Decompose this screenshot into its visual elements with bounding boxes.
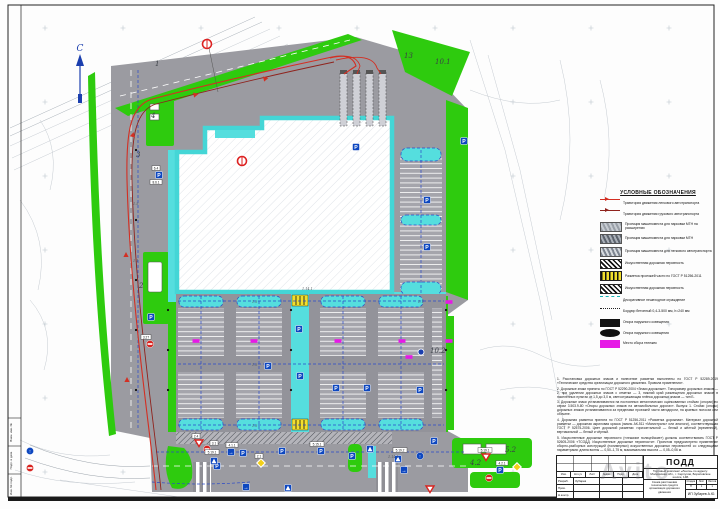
pole2-swatch xyxy=(600,329,620,337)
sign-p: P xyxy=(279,448,286,456)
svg-text:P: P xyxy=(425,198,429,204)
sign-arrow: → xyxy=(401,467,408,475)
marking-label: 1.5 xyxy=(133,202,138,206)
sign-noentry xyxy=(146,340,153,347)
person-date xyxy=(623,485,643,491)
legend-title: УСЛОВНЫЕ ОБОЗНАЧЕНИЯ xyxy=(598,190,718,196)
dot-swatch xyxy=(600,308,620,317)
svg-text:P: P xyxy=(365,386,369,392)
cart-swatch xyxy=(600,340,620,348)
sign-flag: 5.19.1 xyxy=(205,450,219,455)
sign-p: P xyxy=(424,244,431,252)
person-name xyxy=(574,485,600,491)
legend-row: Опора наружного освещения xyxy=(600,319,718,327)
sign-arrow: → xyxy=(228,449,235,457)
area-callout: 1 xyxy=(155,60,159,68)
sign-p: P xyxy=(417,387,424,395)
sign-flag: 5.15.1 xyxy=(310,442,324,447)
svg-text:4.2.1: 4.2.1 xyxy=(498,461,505,465)
marking-label: 1.14.1 xyxy=(388,455,399,459)
stamp-person-row: Пров. xyxy=(557,485,643,492)
sign-p: P xyxy=(497,467,504,475)
legend-row: Искусственная дорожная неровность xyxy=(600,284,718,294)
stage-value: П xyxy=(686,485,697,489)
svg-text:↑: ↑ xyxy=(29,449,32,455)
legend-row: Искусственная дорожная неровность xyxy=(600,259,718,269)
hump-swatch xyxy=(600,284,622,294)
ym-swatch xyxy=(600,271,622,281)
stage-label: Листов xyxy=(707,480,717,484)
sign-noentry xyxy=(26,464,33,471)
stamp-head-cell: Дата xyxy=(629,472,643,477)
note-item: 4. Дорожная разметка принята по ГОСТ Р 5… xyxy=(557,418,718,434)
north-label: С xyxy=(77,44,84,54)
drawing-sheet: С PPPPPPPPPPPPPPPPPPP→→→↑↑ 5.19.15.19.22… xyxy=(0,0,720,509)
sign-p: P xyxy=(349,453,356,461)
person-name: Зубарев xyxy=(574,478,600,484)
long-crosswalk xyxy=(176,432,392,444)
legend-label: Искусственная дорожная неровность xyxy=(625,287,684,291)
legend-row: Опора наружного освещения xyxy=(600,329,718,337)
marking-label: 1.1 xyxy=(133,259,138,263)
sign-pole xyxy=(135,219,137,221)
legend-label: Опора наружного освещения xyxy=(623,321,669,325)
svg-text:4.1.1: 4.1.1 xyxy=(228,443,235,447)
sign-pole xyxy=(135,389,137,391)
legend-label: Проекция машиноместа для легкового автот… xyxy=(625,250,712,254)
svg-text:P: P xyxy=(418,388,422,394)
marking-label: 1.5 xyxy=(252,300,257,304)
sign-p: P xyxy=(364,385,371,393)
sign-pole xyxy=(167,309,169,311)
sign-cart xyxy=(406,355,413,359)
stamp-head-cell: Лист xyxy=(586,472,600,477)
pole-swatch xyxy=(600,319,620,327)
legend-row: Траектория движения легкового автотрансп… xyxy=(600,199,718,208)
svg-text:P: P xyxy=(215,464,219,470)
title-block: Изм.Кол.учЛист№док.Подп.Дата Разраб.Зуба… xyxy=(556,455,718,499)
stamp-head-cell: Подп. xyxy=(614,472,628,477)
legend-label: Траектория движения грузового автотрансп… xyxy=(623,213,699,217)
note-item: 1. Расстановка дорожных знаков и нанесен… xyxy=(557,377,718,385)
sign-pole xyxy=(290,389,292,391)
north-arrow: С xyxy=(76,44,84,103)
legend-label: Место сбора тележек xyxy=(623,342,657,346)
legend-label: Траектория движения легкового автотрансп… xyxy=(623,202,699,206)
area-callout: 4 xyxy=(150,112,155,120)
svg-text:6.4: 6.4 xyxy=(154,166,159,170)
sign-cart xyxy=(446,300,453,304)
note-item: 2. Дорожные знаки приняты по ГОСТ Р 5229… xyxy=(557,387,718,399)
sign-flag: 8.6.1 xyxy=(150,180,162,185)
area-callout: 4.2 xyxy=(469,459,482,467)
frame-strip-label: Подп. и дата xyxy=(9,447,13,474)
project-object: Торговый комплекс «Лента» по адресу: Мос… xyxy=(644,469,717,480)
sign-cart xyxy=(193,339,200,343)
area-callout: 10.1 xyxy=(435,58,451,66)
legend-row: Проекция машиноместа для парковки МГН xyxy=(600,234,718,244)
sign-p: P xyxy=(297,373,304,381)
sign-roundarrow: ↑ xyxy=(26,447,33,455)
svg-text:2.4: 2.4 xyxy=(194,434,199,438)
sign-pole xyxy=(445,309,447,311)
marking-label: 1.5 xyxy=(252,424,257,428)
sign-p: P xyxy=(333,385,340,393)
sign-p: P xyxy=(318,448,325,456)
sign-walk xyxy=(211,458,218,465)
svg-text:P: P xyxy=(350,454,354,460)
photo v3-swatch xyxy=(600,247,622,257)
sign-p: P xyxy=(461,138,468,146)
person-signature xyxy=(600,492,623,498)
sign-walk xyxy=(285,485,292,492)
svg-text:5.15.1: 5.15.1 xyxy=(313,442,322,446)
sign-pole xyxy=(135,279,137,281)
svg-text:5.19.1: 5.19.1 xyxy=(208,450,217,454)
sign-flag: 4.2.1 xyxy=(496,461,508,466)
legend-label: Проекция машиноместа для парковки МГН на… xyxy=(625,223,718,230)
sign-p: P xyxy=(148,314,155,322)
svg-text:→: → xyxy=(243,485,248,491)
stage-label: Лист xyxy=(697,480,708,484)
revision-grid xyxy=(557,456,643,472)
sign-p: P xyxy=(156,172,163,180)
svg-text:P: P xyxy=(462,139,466,145)
area-callout: 2 xyxy=(138,282,144,290)
stamp-head-cell: №док. xyxy=(600,472,614,477)
svg-text:P: P xyxy=(334,386,338,392)
person-name xyxy=(574,492,600,498)
sign-cart xyxy=(399,339,406,343)
zebra-crossing-center xyxy=(376,462,398,492)
area-callout: 3 xyxy=(136,151,141,159)
legend-panel: УСЛОВНЫЕ ОБОЗНАЧЕНИЯ Траектория движения… xyxy=(598,190,718,350)
sign-flag: 5.19.2 xyxy=(393,448,407,453)
svg-text:P: P xyxy=(319,449,323,455)
sign-pole xyxy=(290,349,292,351)
person-role: Разраб. xyxy=(557,478,574,484)
marking-label: 1.5 xyxy=(252,363,257,367)
sign-flag: 2.4 xyxy=(192,434,200,439)
svg-text:P: P xyxy=(241,451,245,457)
legend-row: Проекция машиноместа для парковки МГН на… xyxy=(600,222,718,232)
project-code: ПОДД xyxy=(644,456,717,469)
sign-pole xyxy=(167,349,169,351)
svg-text:P: P xyxy=(498,468,502,474)
author: ИП Зубарев А.Ю. xyxy=(686,490,717,498)
svg-text:→: → xyxy=(401,468,406,474)
person-date xyxy=(623,492,643,498)
svg-text:3.1: 3.1 xyxy=(212,441,217,445)
svg-text:P: P xyxy=(297,327,301,333)
svg-text:↑: ↑ xyxy=(419,454,422,460)
sign-p: P xyxy=(265,363,272,371)
sign-flag: 3.1 xyxy=(210,441,218,446)
sign-p: P xyxy=(296,326,303,334)
legend-rows: Траектория движения легкового автотрансп… xyxy=(598,199,718,348)
sign-arrow: → xyxy=(243,484,250,492)
svg-text:5.19.2: 5.19.2 xyxy=(396,448,405,452)
svg-text:P: P xyxy=(280,449,284,455)
line dark-swatch xyxy=(600,210,620,219)
building-entrance-canopy xyxy=(215,130,255,138)
photo-swatch xyxy=(600,222,622,232)
svg-text:P: P xyxy=(432,439,436,445)
legend-row: Декоративное пешеходное ограждение xyxy=(600,296,718,305)
legend-label: Опора наружного освещения xyxy=(623,332,669,336)
sign-p: P xyxy=(431,438,438,446)
stamp-head-cell: Кол.уч xyxy=(571,472,585,477)
photo v2-swatch xyxy=(600,234,622,244)
stamp-person-row: Разраб.Зубарев xyxy=(557,478,643,485)
sign-cart xyxy=(335,339,342,343)
sheet-title: Схема расстановки технических средств ор… xyxy=(644,480,686,498)
legend-row: Бордюр бетонный 0,4-3-500 мм, h=240 мм xyxy=(600,308,718,317)
svg-text:P: P xyxy=(298,374,302,380)
area-callout: 10.2 xyxy=(430,347,446,355)
legend-label: Бордюр бетонный 0,4-3-500 мм, h=240 мм xyxy=(623,310,690,314)
svg-text:P: P xyxy=(157,173,161,179)
sign-p: P xyxy=(353,144,360,152)
marking-label: 1.1 xyxy=(418,300,423,304)
person-signature xyxy=(600,478,623,484)
area-callout: 5.2 xyxy=(505,446,517,454)
stage-value: 1 xyxy=(707,485,717,489)
legend-row: Траектория движения грузового автотрансп… xyxy=(600,210,718,219)
legend-row: Место сбора тележек xyxy=(600,340,718,348)
sign-pole xyxy=(290,309,292,311)
sign-noentry xyxy=(485,474,492,481)
poi-marker-icon xyxy=(418,349,424,355)
sign-flag: 4.1.1 xyxy=(226,443,238,448)
sign-cart xyxy=(446,339,453,343)
sign-p: P xyxy=(240,450,247,458)
note-item: 3. Дорожные знаки устанавливаются на пос… xyxy=(557,400,718,416)
legend-label: Декоративное пешеходное ограждение xyxy=(623,299,685,303)
svg-text:→: → xyxy=(228,450,233,456)
sign-pole xyxy=(445,389,447,391)
person-date xyxy=(623,478,643,484)
person-role: Пров. xyxy=(557,485,574,491)
sign-cart xyxy=(251,339,258,343)
marking-label: 1.14.1 xyxy=(302,287,313,291)
stamp-head-cell: Изм. xyxy=(557,472,571,477)
svg-text:P: P xyxy=(266,364,270,370)
frame-strip-label: Взам. инв. № xyxy=(9,419,13,446)
legend-label: Искусственная дорожная неровность xyxy=(625,262,684,266)
line-swatch xyxy=(600,199,620,208)
sign-walk xyxy=(367,446,374,453)
sign-pole xyxy=(135,329,137,331)
notes-block: 1. Расстановка дорожных знаков и нанесен… xyxy=(557,377,718,453)
svg-text:P: P xyxy=(149,315,153,321)
frame-strip-label: Инв. № подл. xyxy=(9,472,13,499)
legend-label: Разметка проезжей части по ГОСТ Р 51256-… xyxy=(625,275,702,279)
legend-row: Проекция машиноместа для легкового автот… xyxy=(600,247,718,257)
sign-flag: 3.27 xyxy=(141,335,151,340)
note-item: 5. Искусственные дорожные неровности («л… xyxy=(557,436,718,452)
sign-flag: 2.1 xyxy=(255,454,263,459)
zebra-crossing-left xyxy=(193,462,211,492)
person-role: Н.контр. xyxy=(557,492,574,498)
legend-label: Проекция машиноместа для парковки МГН xyxy=(625,237,693,241)
fence-swatch xyxy=(600,296,620,305)
svg-text:3.27: 3.27 xyxy=(143,335,149,339)
svg-text:5.19.1: 5.19.1 xyxy=(481,448,490,452)
hump-swatch xyxy=(600,259,622,269)
svg-text:P: P xyxy=(354,145,358,151)
building xyxy=(177,118,392,292)
area-callout: 13 xyxy=(404,52,413,60)
person-signature xyxy=(600,485,623,491)
stage-label: Стадия xyxy=(686,480,697,484)
sign-flag: 5.19.1 xyxy=(478,448,492,453)
svg-text:2.1: 2.1 xyxy=(257,454,262,458)
legend-row: Разметка проезжей части по ГОСТ Р 51256-… xyxy=(600,271,718,281)
svg-text:8.6.1: 8.6.1 xyxy=(152,180,159,184)
stage-value: 1 xyxy=(697,485,708,489)
sign-pole xyxy=(167,389,169,391)
sign-p: P xyxy=(424,197,431,205)
stamp-right: ПОДД Торговый комплекс «Лента» по адресу… xyxy=(643,456,717,498)
sign-flag: 6.4 xyxy=(152,166,160,171)
svg-text:P: P xyxy=(425,245,429,251)
stamp-person-row: Н.контр. xyxy=(557,492,643,499)
stamp-people-rows: Разраб.ЗубаревПров.Н.контр. xyxy=(557,478,643,499)
